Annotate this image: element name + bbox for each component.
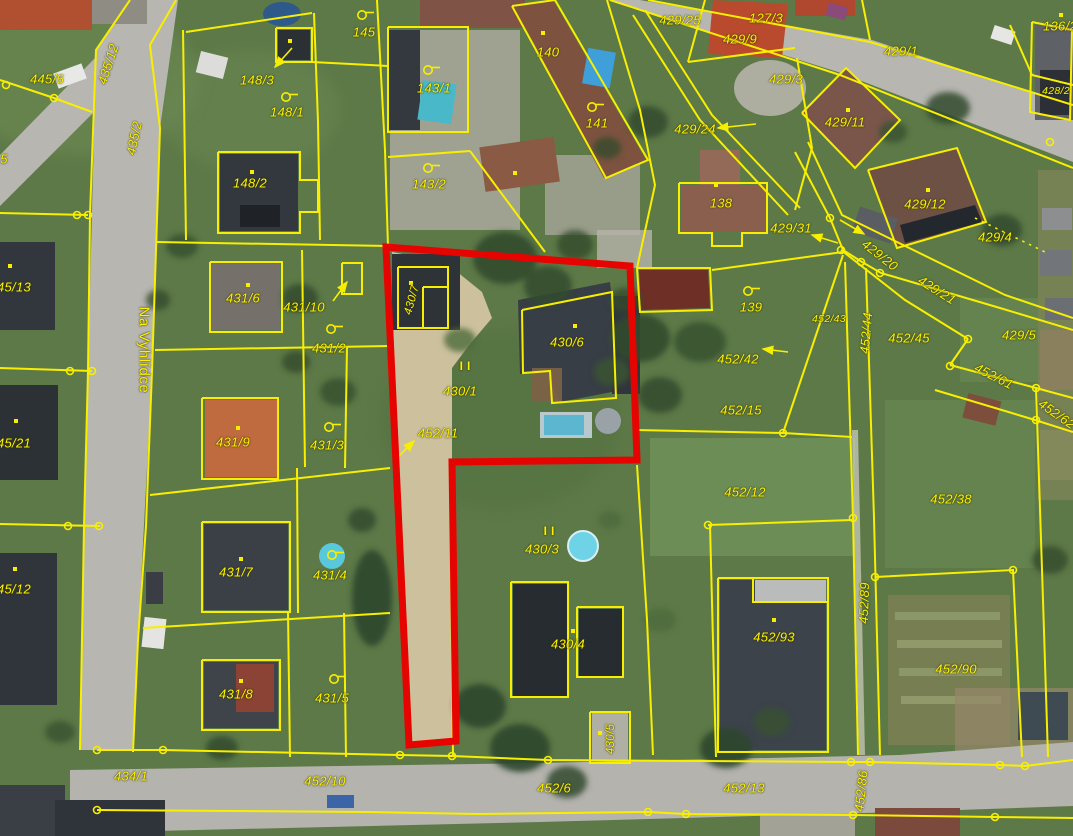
building-dot-icon xyxy=(926,188,930,192)
building-dot-icon xyxy=(846,108,850,112)
building-dot-icon xyxy=(14,419,18,423)
building-dot-icon xyxy=(288,39,292,43)
building-dot-icon xyxy=(772,618,776,622)
building-dot-icon xyxy=(8,264,12,268)
building-dot-icon xyxy=(598,731,602,735)
terrain-layer xyxy=(0,0,1073,836)
building-dot-icon xyxy=(573,324,577,328)
building-dot-icon xyxy=(541,31,545,35)
building-dot-icon xyxy=(250,170,254,174)
building-dot-icon xyxy=(239,679,243,683)
building-dot-icon xyxy=(239,557,243,561)
building-dot-icon xyxy=(13,567,17,571)
cadastral-map[interactable]: Na Vyhlídce 445/6435/12435/2545/1345/214… xyxy=(0,0,1073,836)
building-dot-icon xyxy=(714,183,718,187)
building-dot-icon xyxy=(1059,13,1063,17)
building-dot-icon xyxy=(236,426,240,430)
building-dot-icon xyxy=(409,281,413,285)
building-dot-icon xyxy=(571,629,575,633)
building-dot-icon xyxy=(513,171,517,175)
building-dot-icon xyxy=(246,283,250,287)
aerial-imagery xyxy=(0,0,1073,836)
